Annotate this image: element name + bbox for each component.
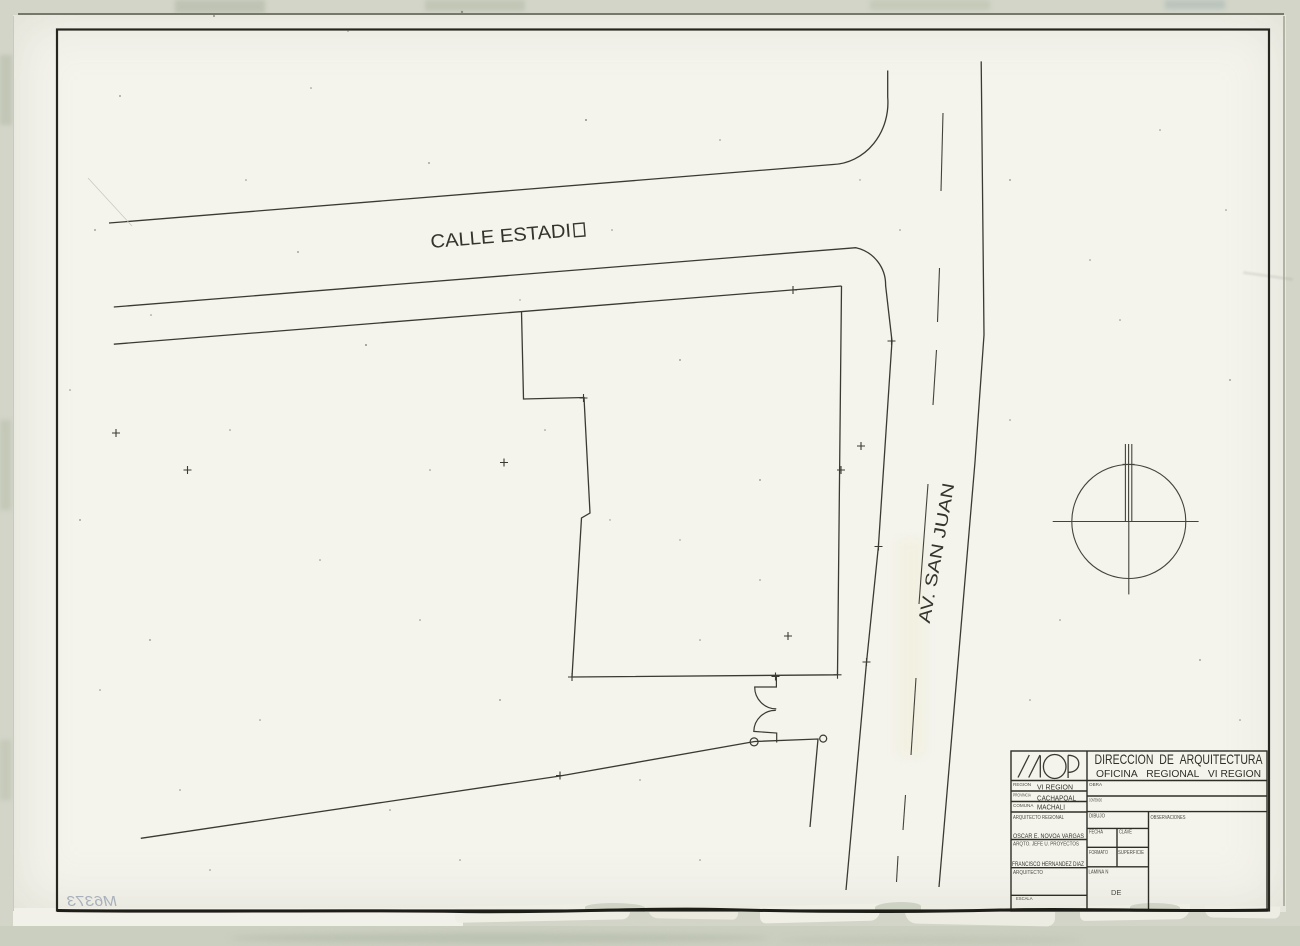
- svg-text:REGION: REGION: [1013, 782, 1031, 787]
- svg-text:CACHAPOAL: CACHAPOAL: [1037, 794, 1076, 803]
- svg-text:DIRECCION DE ARQUITECTURA: DIRECCION DE ARQUITECTURA: [1095, 751, 1263, 767]
- svg-text:ARQUITECTO REGIONAL: ARQUITECTO REGIONAL: [1013, 815, 1064, 821]
- svg-text:VI REGION: VI REGION: [1037, 783, 1073, 792]
- svg-text:LAMINA N: LAMINA N: [1089, 870, 1109, 876]
- svg-text:OSCAR E. NOVOA VARGAS: OSCAR E. NOVOA VARGAS: [1013, 833, 1085, 840]
- svg-text:CALLE ESTADI: CALLE ESTADI: [430, 221, 572, 253]
- svg-text:ARQUITECTO: ARQUITECTO: [1013, 870, 1044, 876]
- svg-text:MACHALI: MACHALI: [1037, 803, 1065, 812]
- svg-text:OBRA: OBRA: [1089, 782, 1103, 787]
- svg-text:FECHA: FECHA: [1089, 829, 1104, 835]
- svg-text:CLAVE: CLAVE: [1119, 829, 1133, 835]
- svg-text:COMUNA: COMUNA: [1013, 803, 1034, 808]
- svg-text:CONTENIDO: CONTENIDO: [1089, 798, 1102, 803]
- svg-text:ARQTO. JEFE U. PROYECTOS: ARQTO. JEFE U. PROYECTOS: [1013, 842, 1079, 848]
- svg-text:DIBUJO: DIBUJO: [1089, 814, 1105, 820]
- svg-text:PROVINCIA: PROVINCIA: [1013, 793, 1032, 798]
- svg-text:OBSERVACIONES: OBSERVACIONES: [1151, 815, 1186, 821]
- svg-text:FORMATO: FORMATO: [1089, 850, 1108, 856]
- svg-text:AV. SAN JUAN: AV. SAN JUAN: [915, 481, 958, 624]
- svg-text:FRANCISCO HERNANDEZ DIAZ: FRANCISCO HERNANDEZ DIAZ: [1012, 861, 1084, 868]
- svg-text:SUPERFICIE: SUPERFICIE: [1118, 850, 1145, 856]
- svg-text:OFICINA REGIONAL VI REGION: OFICINA REGIONAL VI REGION: [1096, 768, 1261, 780]
- svg-text:DE: DE: [1111, 888, 1121, 897]
- svg-text:ESCALA: ESCALA: [1016, 896, 1033, 901]
- svg-text:M6373: M6373: [66, 893, 117, 910]
